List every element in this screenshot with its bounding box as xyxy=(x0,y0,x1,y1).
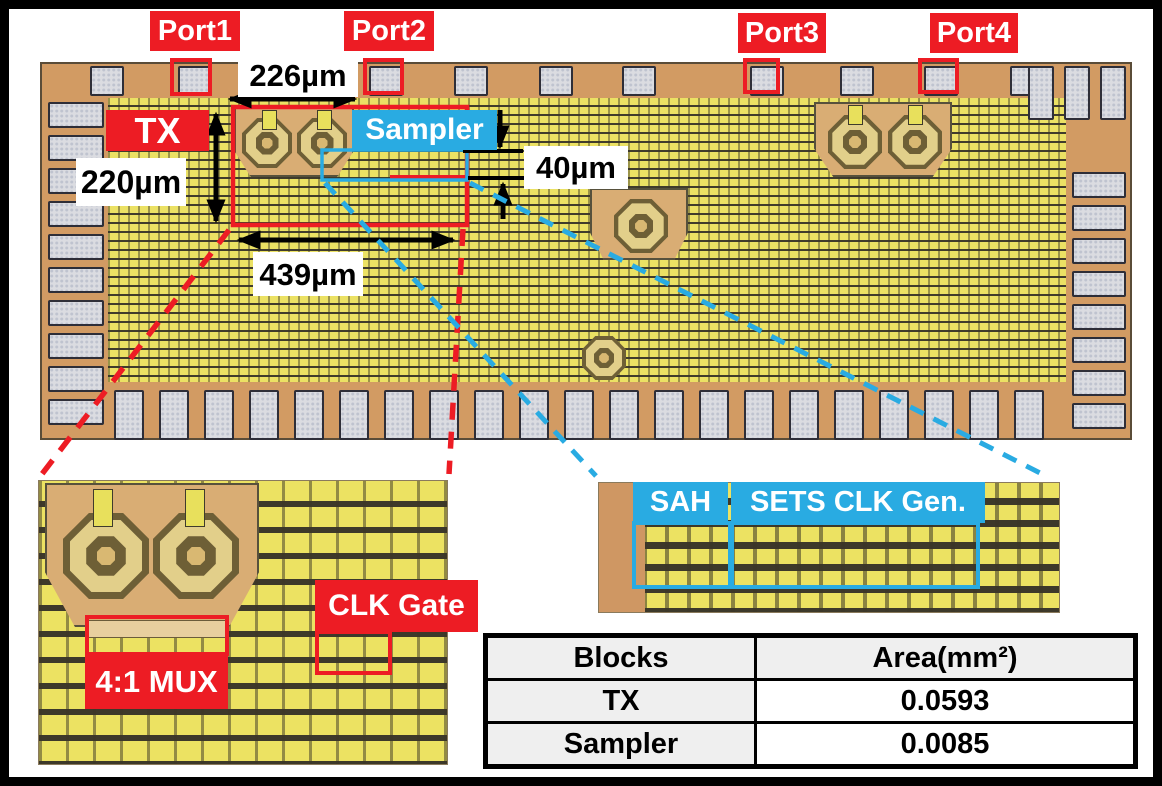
bond-pad xyxy=(1072,172,1126,198)
bond-pad xyxy=(1072,271,1126,297)
mid-inductor-block xyxy=(590,188,688,260)
dim-label-439um: 439µm xyxy=(253,252,363,296)
bond-pad xyxy=(924,390,954,440)
sah-label: SAH xyxy=(633,482,728,523)
bond-pad xyxy=(339,390,369,440)
bond-pad xyxy=(750,66,784,96)
port3-label: Port3 xyxy=(738,13,826,53)
bond-pad xyxy=(48,333,104,359)
bond-pad xyxy=(1064,66,1090,120)
bond-pad xyxy=(969,390,999,440)
bond-pad xyxy=(789,390,819,440)
via-stub xyxy=(262,110,277,130)
dim-label-226um: 226µm xyxy=(238,54,358,97)
port4-label: Port4 xyxy=(930,13,1018,53)
bond-pad xyxy=(654,390,684,440)
via-stub xyxy=(93,489,113,527)
bond-pad xyxy=(48,300,104,326)
tx-label: TX xyxy=(106,110,209,151)
table-row: Sampler 0.0085 xyxy=(486,723,1136,767)
bond-pad xyxy=(1072,304,1126,330)
bond-pad xyxy=(1072,370,1126,396)
bond-pad xyxy=(1028,66,1054,120)
bond-pad xyxy=(48,102,104,128)
bond-pad xyxy=(249,390,279,440)
bond-pad xyxy=(924,66,958,96)
bond-pad xyxy=(609,390,639,440)
mux-label: 4:1 MUX xyxy=(85,653,228,709)
bond-pad xyxy=(622,66,656,96)
bond-pad xyxy=(744,390,774,440)
bond-pad xyxy=(564,390,594,440)
table-cell-block: Sampler xyxy=(486,723,756,767)
bond-pad xyxy=(1072,238,1126,264)
dim-label-40um: 40µm xyxy=(524,146,628,189)
via-stub xyxy=(848,105,863,125)
inset-transformer-block xyxy=(45,483,259,627)
right-transformer-block xyxy=(814,102,952,177)
bond-pad xyxy=(834,390,864,440)
table-header-area: Area(mm²) xyxy=(756,636,1136,680)
bond-pad xyxy=(519,390,549,440)
bond-pad xyxy=(879,390,909,440)
table-cell-area: 0.0085 xyxy=(756,723,1136,767)
bond-pad xyxy=(384,390,414,440)
sampler-label: Sampler xyxy=(352,110,497,150)
bond-pad xyxy=(699,390,729,440)
bond-pad xyxy=(48,366,104,392)
bond-pad xyxy=(114,390,144,440)
clk-gate-label: CLK Gate xyxy=(315,580,478,632)
bond-pad xyxy=(539,66,573,96)
table-cell-area: 0.0593 xyxy=(756,680,1136,723)
table-cell-block: TX xyxy=(486,680,756,723)
bond-pad xyxy=(48,267,104,293)
port2-label: Port2 xyxy=(344,11,434,51)
die-micrograph-figure: Port1 Port2 Port3 Port4 TX Sampler 226µm… xyxy=(0,0,1162,786)
via-stub xyxy=(908,105,923,125)
bond-pad xyxy=(840,66,874,96)
bond-pad xyxy=(1072,205,1126,231)
bond-pad xyxy=(1072,403,1126,429)
table-header-blocks: Blocks xyxy=(486,636,756,680)
tx-transformer-block xyxy=(234,107,354,177)
bond-pad xyxy=(429,390,459,440)
port1-label: Port1 xyxy=(150,11,240,51)
bond-pad xyxy=(369,66,403,96)
table-header-row: Blocks Area(mm²) xyxy=(486,636,1136,680)
bond-pad xyxy=(1072,337,1126,363)
inductor-coil xyxy=(614,199,668,253)
bond-pad xyxy=(48,234,104,260)
mux-metal-bar xyxy=(87,620,229,638)
table-row: TX 0.0593 xyxy=(486,680,1136,723)
bond-pad xyxy=(178,66,212,96)
bond-pad xyxy=(90,66,124,96)
bond-pad xyxy=(1014,390,1044,440)
via-stub xyxy=(317,110,332,130)
area-table: Blocks Area(mm²) TX 0.0593 Sampler 0.008… xyxy=(483,633,1138,769)
bond-pad xyxy=(474,390,504,440)
bond-pad xyxy=(1100,66,1126,120)
dim-label-220um: 220µm xyxy=(76,158,186,206)
bond-pad xyxy=(48,399,104,425)
bond-pad xyxy=(454,66,488,96)
bond-pad xyxy=(294,390,324,440)
bond-pad xyxy=(159,390,189,440)
sets-clk-gen-label: SETS CLK Gen. xyxy=(731,482,985,523)
via-stub xyxy=(185,489,205,527)
bond-pad xyxy=(204,390,234,440)
